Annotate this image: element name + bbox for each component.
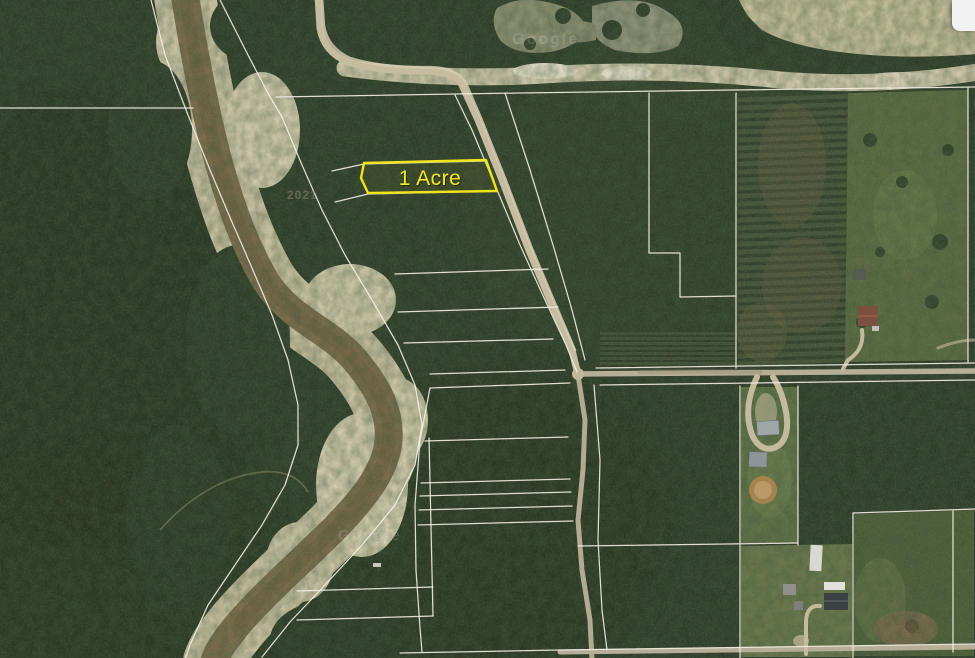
canopy-texture-light (0, 0, 975, 658)
map-canvas[interactable]: 1 Acre Google Google 2021 (0, 0, 975, 658)
watermark-year: 2021 (287, 188, 318, 202)
map-control-fragment[interactable] (952, 0, 975, 31)
parcel-area-label: 1 Acre (399, 167, 462, 190)
highlighted-parcel-group: 1 Acre (361, 160, 497, 193)
satellite-map-view[interactable]: 1 Acre Google Google 2021 (0, 0, 975, 658)
watermark-google-top: Google (512, 31, 579, 48)
mobile-home (809, 545, 822, 572)
watermark-google-bottom: Google (338, 527, 402, 544)
